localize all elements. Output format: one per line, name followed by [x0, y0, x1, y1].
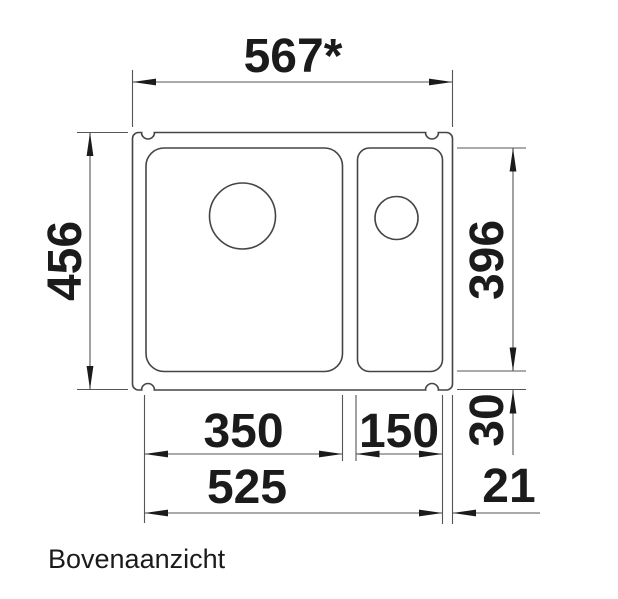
dim-basin-depth: 396	[457, 148, 526, 371]
arrow-right-icon	[419, 510, 443, 517]
arrow-down-icon	[510, 348, 517, 372]
sink-outer-edge	[133, 133, 453, 391]
arrow-down-icon	[87, 366, 94, 390]
dim-side-basin-width: 150	[356, 395, 443, 524]
sink-outline	[133, 131, 453, 391]
dim-label-21: 21	[482, 460, 535, 513]
drain-circle-right	[375, 197, 418, 240]
view-caption: Bovenaanzicht	[48, 544, 225, 575]
dim-label-525: 525	[207, 461, 287, 514]
dim-label-350: 350	[203, 405, 283, 458]
basin-left	[146, 148, 343, 372]
arrow-left-icon	[133, 79, 157, 86]
arrow-left-icon	[145, 451, 169, 458]
technical-drawing: 567* 456 396 30	[0, 0, 618, 599]
arrow-right-icon	[429, 79, 453, 86]
mounting-notch	[143, 389, 154, 392]
drain-circle-left	[210, 183, 276, 249]
arrow-left-icon	[453, 510, 477, 517]
mounting-notch	[427, 389, 438, 392]
mounting-notch	[143, 131, 154, 134]
arrow-up-icon	[87, 133, 94, 157]
basin-right	[358, 148, 443, 372]
dim-label-567: 567*	[244, 30, 343, 83]
mounting-notch	[427, 131, 438, 134]
arrow-up-icon	[510, 148, 517, 172]
sink-top-view-svg: 567* 456 396 30	[0, 0, 618, 599]
dim-basins-total-width: 525	[145, 461, 443, 516]
arrow-right-icon	[319, 451, 343, 458]
dim-label-150: 150	[359, 405, 439, 458]
arrow-left-icon	[145, 510, 169, 517]
dim-label-396: 396	[461, 220, 514, 300]
dim-label-456: 456	[39, 221, 92, 301]
dim-overall-width: 567*	[133, 30, 453, 127]
dim-rear-ledge: 30	[457, 390, 526, 456]
dim-label-30: 30	[461, 393, 514, 446]
dim-overall-depth: 456	[39, 133, 128, 390]
